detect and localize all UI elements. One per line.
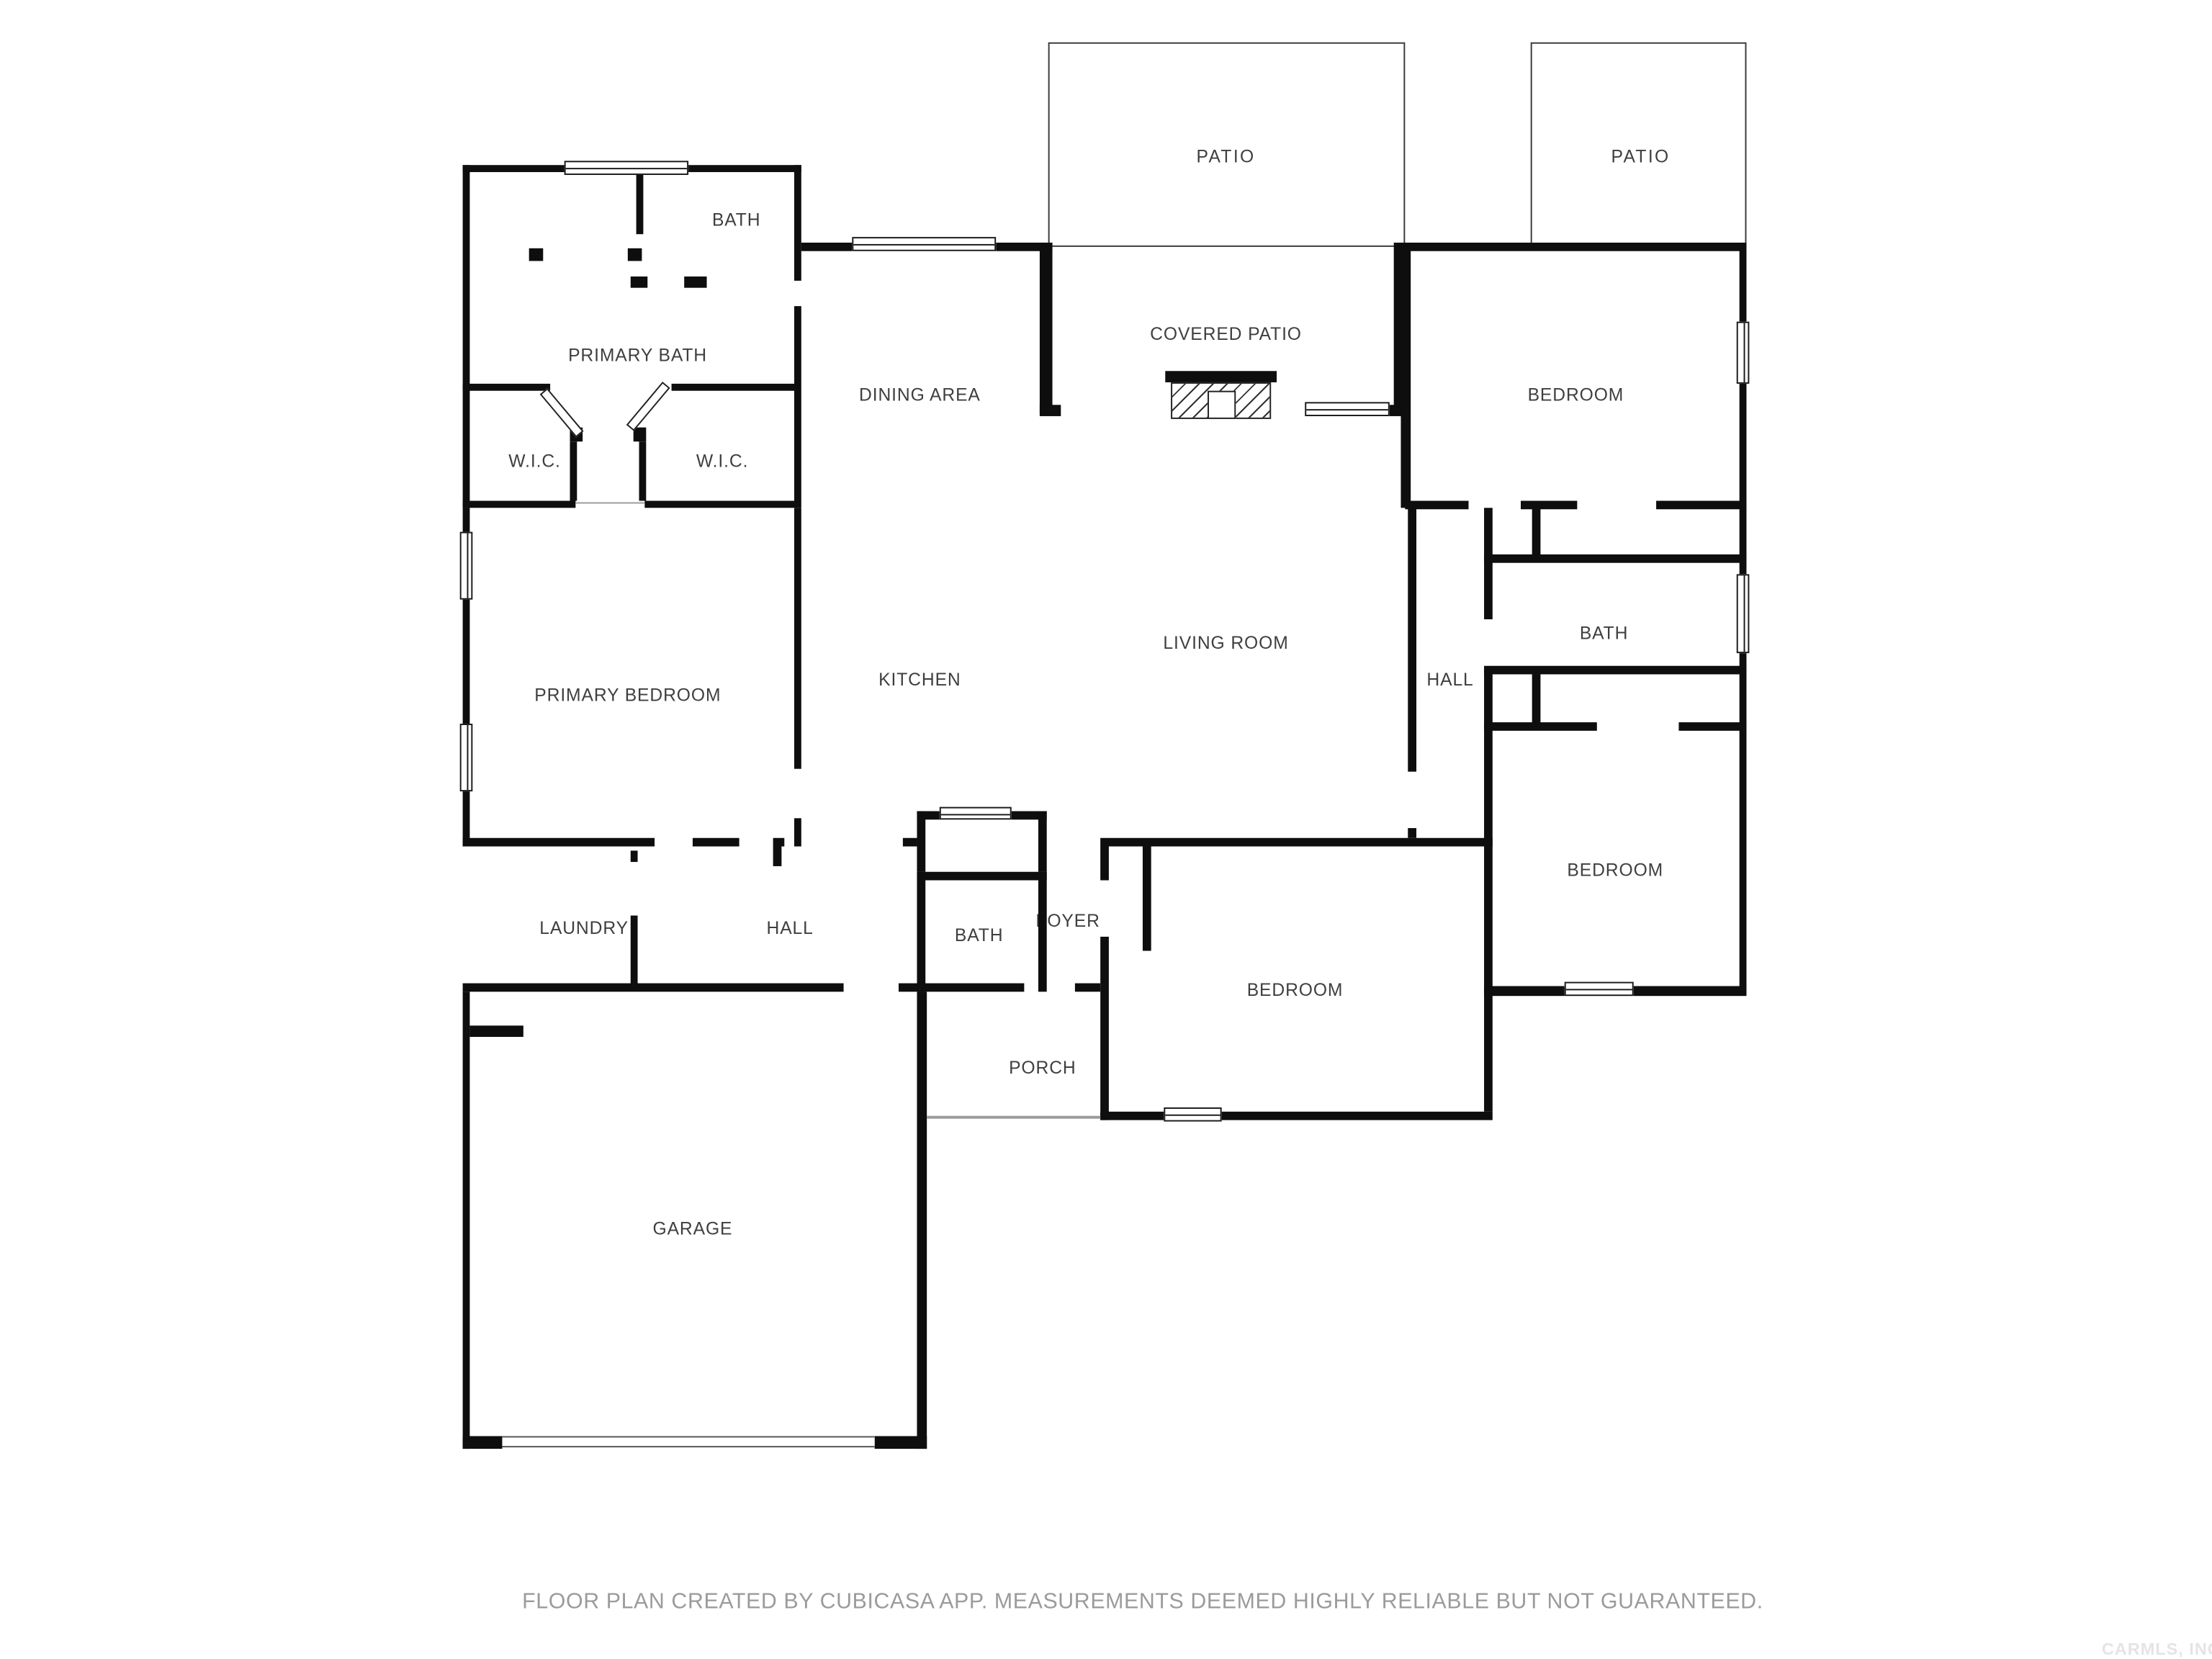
- wall-segment: [875, 1436, 927, 1449]
- wall-segment: [1040, 405, 1061, 416]
- room-label-bedroom-center: BEDROOM: [1247, 981, 1344, 1000]
- wall-segment: [794, 818, 801, 846]
- room-label-primary-bedroom: PRIMARY BEDROOM: [534, 685, 721, 705]
- wall-segment: [1484, 508, 1493, 619]
- wall-segment: [1394, 243, 1411, 413]
- room-label-hall-right: HALL: [1426, 670, 1473, 690]
- wall-segment: [1532, 674, 1541, 725]
- door-leaf-icon: [626, 382, 670, 431]
- wall-segment: [688, 165, 801, 172]
- wall-segment: [1484, 666, 1746, 675]
- wall-segment: [631, 276, 648, 288]
- wall-segment: [1222, 1112, 1493, 1120]
- wall-segment: [463, 838, 655, 847]
- room-label-laundry: LAUNDRY: [539, 918, 629, 938]
- wall-segment: [1401, 413, 1411, 508]
- room-label-bedroom-right: BEDROOM: [1567, 860, 1663, 880]
- room-label-wic-right: W.I.C.: [696, 451, 748, 471]
- wall-segment: [773, 838, 785, 847]
- wall-segment: [639, 441, 647, 500]
- wall-segment: [463, 165, 470, 508]
- thin-edge-line: [927, 1116, 1100, 1118]
- wall-segment: [463, 384, 550, 391]
- wall-segment: [917, 872, 925, 992]
- wall-segment: [801, 243, 853, 251]
- wall-segment: [529, 248, 544, 261]
- wall-segment: [1075, 984, 1100, 992]
- wall-segment: [469, 1025, 523, 1037]
- window-symbol: [1305, 402, 1390, 416]
- wall-segment: [794, 165, 801, 281]
- wall-segment: [1634, 986, 1747, 996]
- room-label-hall-bottom: HALL: [767, 918, 814, 938]
- room-label-dining-area: DINING AREA: [859, 385, 981, 405]
- footer-disclaimer: FLOOR PLAN CREATED BY CUBICASA APP. MEAS…: [522, 1590, 1763, 1615]
- wall-segment: [1740, 243, 1747, 322]
- wall-segment: [794, 508, 801, 768]
- room-label-bedroom-topright: BEDROOM: [1528, 385, 1624, 405]
- wall-segment: [463, 984, 844, 992]
- room-label-bath-topleft: BATH: [712, 210, 761, 230]
- wall-segment: [1165, 371, 1277, 382]
- wall-segment: [684, 276, 706, 288]
- room-label-bath-bottom: BATH: [955, 925, 1004, 945]
- room-label-primary-bath: PRIMARY BATH: [568, 346, 707, 365]
- wall-segment: [903, 838, 917, 847]
- floor-plan: PATIO PATIO BATH PRIMARY BATH DINING ARE…: [0, 0, 2212, 1659]
- wall-segment: [1040, 243, 1053, 413]
- wall-segment: [631, 850, 638, 862]
- wall-segment: [1100, 847, 1109, 881]
- wall-segment: [1656, 501, 1746, 510]
- wall-segment: [1405, 243, 1746, 251]
- wall-segment: [463, 992, 470, 1449]
- wall-segment: [1484, 554, 1746, 563]
- wall-segment: [463, 501, 576, 508]
- wall-segment: [773, 847, 782, 866]
- window-symbol: [460, 724, 473, 791]
- window-symbol: [1737, 322, 1750, 384]
- room-label-patio-left: PATIO: [1196, 147, 1255, 166]
- window-symbol: [1737, 574, 1750, 653]
- garage-door-symbol: [502, 1436, 874, 1447]
- room-label-covered-patio: COVERED PATIO: [1150, 325, 1302, 344]
- window-symbol: [940, 807, 1012, 820]
- wall-segment: [634, 428, 647, 442]
- wall-segment: [1390, 405, 1406, 416]
- window-symbol: [1164, 1107, 1221, 1122]
- wall-segment: [1143, 847, 1151, 951]
- wall-segment: [917, 811, 925, 872]
- wall-segment: [463, 165, 567, 172]
- fireplace-opening-icon: [1208, 391, 1236, 419]
- wall-segment: [637, 172, 644, 234]
- room-label-bath-right: BATH: [1580, 624, 1629, 643]
- wall-segment: [693, 838, 739, 847]
- wall-segment: [644, 501, 794, 508]
- wall-segment: [1740, 384, 1747, 574]
- wall-segment: [1532, 508, 1541, 557]
- wall-segment: [917, 992, 927, 1449]
- wall-segment: [1408, 828, 1416, 838]
- room-label-kitchen: KITCHEN: [878, 670, 961, 690]
- floor-plan-canvas: PATIO PATIO BATH PRIMARY BATH DINING ARE…: [0, 0, 2212, 1659]
- door-leaf-icon: [540, 388, 584, 438]
- wall-segment: [917, 872, 1046, 881]
- patio-outline: [1048, 42, 1406, 247]
- wall-segment: [1484, 722, 1597, 731]
- wall-segment: [1678, 722, 1746, 731]
- wall-segment: [1100, 937, 1109, 1120]
- room-label-porch: PORCH: [1009, 1058, 1076, 1077]
- wall-segment: [1484, 667, 1493, 1112]
- room-label-living-room: LIVING ROOM: [1163, 634, 1288, 653]
- window-symbol: [460, 532, 473, 600]
- wall-segment: [1100, 1112, 1164, 1120]
- room-label-wic-left: W.I.C.: [508, 451, 560, 471]
- window-symbol: [565, 161, 688, 175]
- room-label-patio-right: PATIO: [1611, 147, 1670, 166]
- wall-segment: [631, 916, 638, 988]
- window-symbol: [1565, 982, 1634, 997]
- room-label-garage: GARAGE: [653, 1219, 733, 1238]
- wall-segment: [628, 248, 642, 261]
- thin-edge-line: [575, 502, 644, 504]
- wall-segment: [1740, 653, 1747, 994]
- window-symbol: [852, 237, 996, 251]
- wall-segment: [1408, 508, 1416, 771]
- wall-segment: [463, 1436, 503, 1449]
- wall-segment: [1484, 986, 1565, 996]
- watermark-text: CARMLS, INC: [2102, 1640, 2212, 1659]
- wall-segment: [1100, 838, 1493, 847]
- wall-segment: [672, 384, 794, 391]
- wall-segment: [794, 306, 801, 508]
- wall-segment: [570, 441, 577, 500]
- patio-outline: [1531, 42, 1747, 247]
- wall-segment: [1038, 872, 1047, 992]
- wall-segment: [1521, 501, 1577, 510]
- wall-segment: [1038, 811, 1047, 872]
